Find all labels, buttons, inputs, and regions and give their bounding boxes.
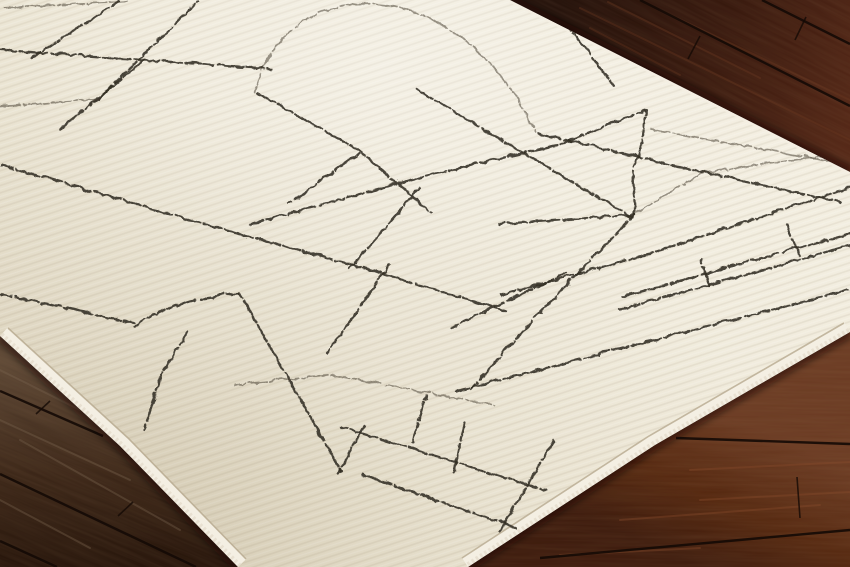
photo-canvas: [0, 0, 850, 567]
rug-photo: [0, 0, 850, 567]
